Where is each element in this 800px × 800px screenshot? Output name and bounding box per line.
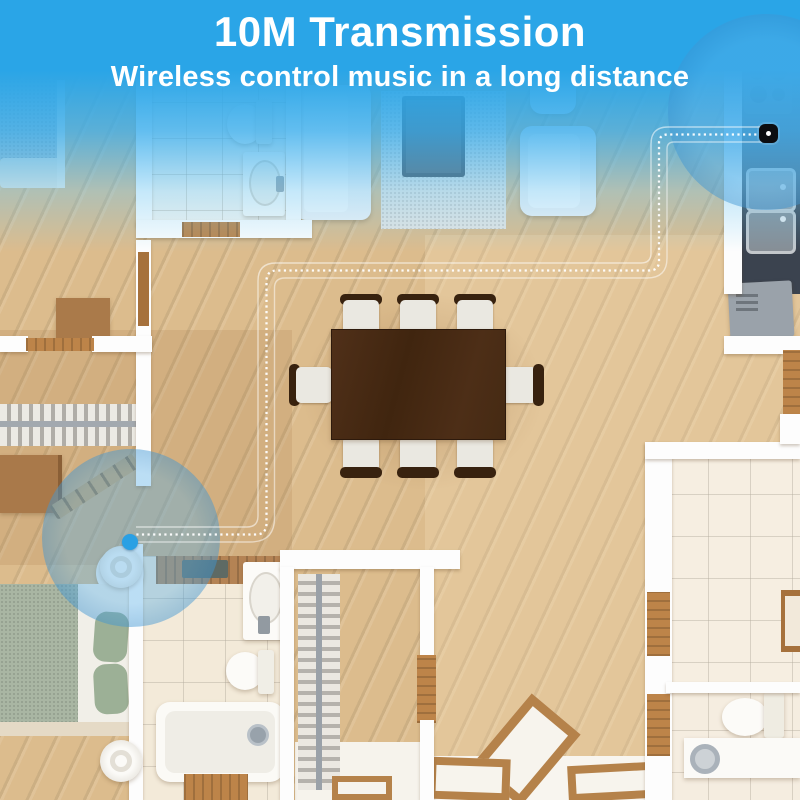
- page-subtitle: Wireless control music in a long distanc…: [0, 61, 800, 94]
- path-inner-line: [136, 142, 762, 542]
- path-outer-line: [136, 127, 762, 527]
- endpoint-dot: [122, 534, 138, 550]
- floor-plan-scene: 10M Transmission Wireless control music …: [0, 0, 800, 800]
- music-receiver-led: [766, 131, 771, 136]
- path-dotted-line: [135, 135, 762, 535]
- page-title: 10M Transmission: [0, 8, 800, 56]
- transmission-path: [0, 0, 800, 800]
